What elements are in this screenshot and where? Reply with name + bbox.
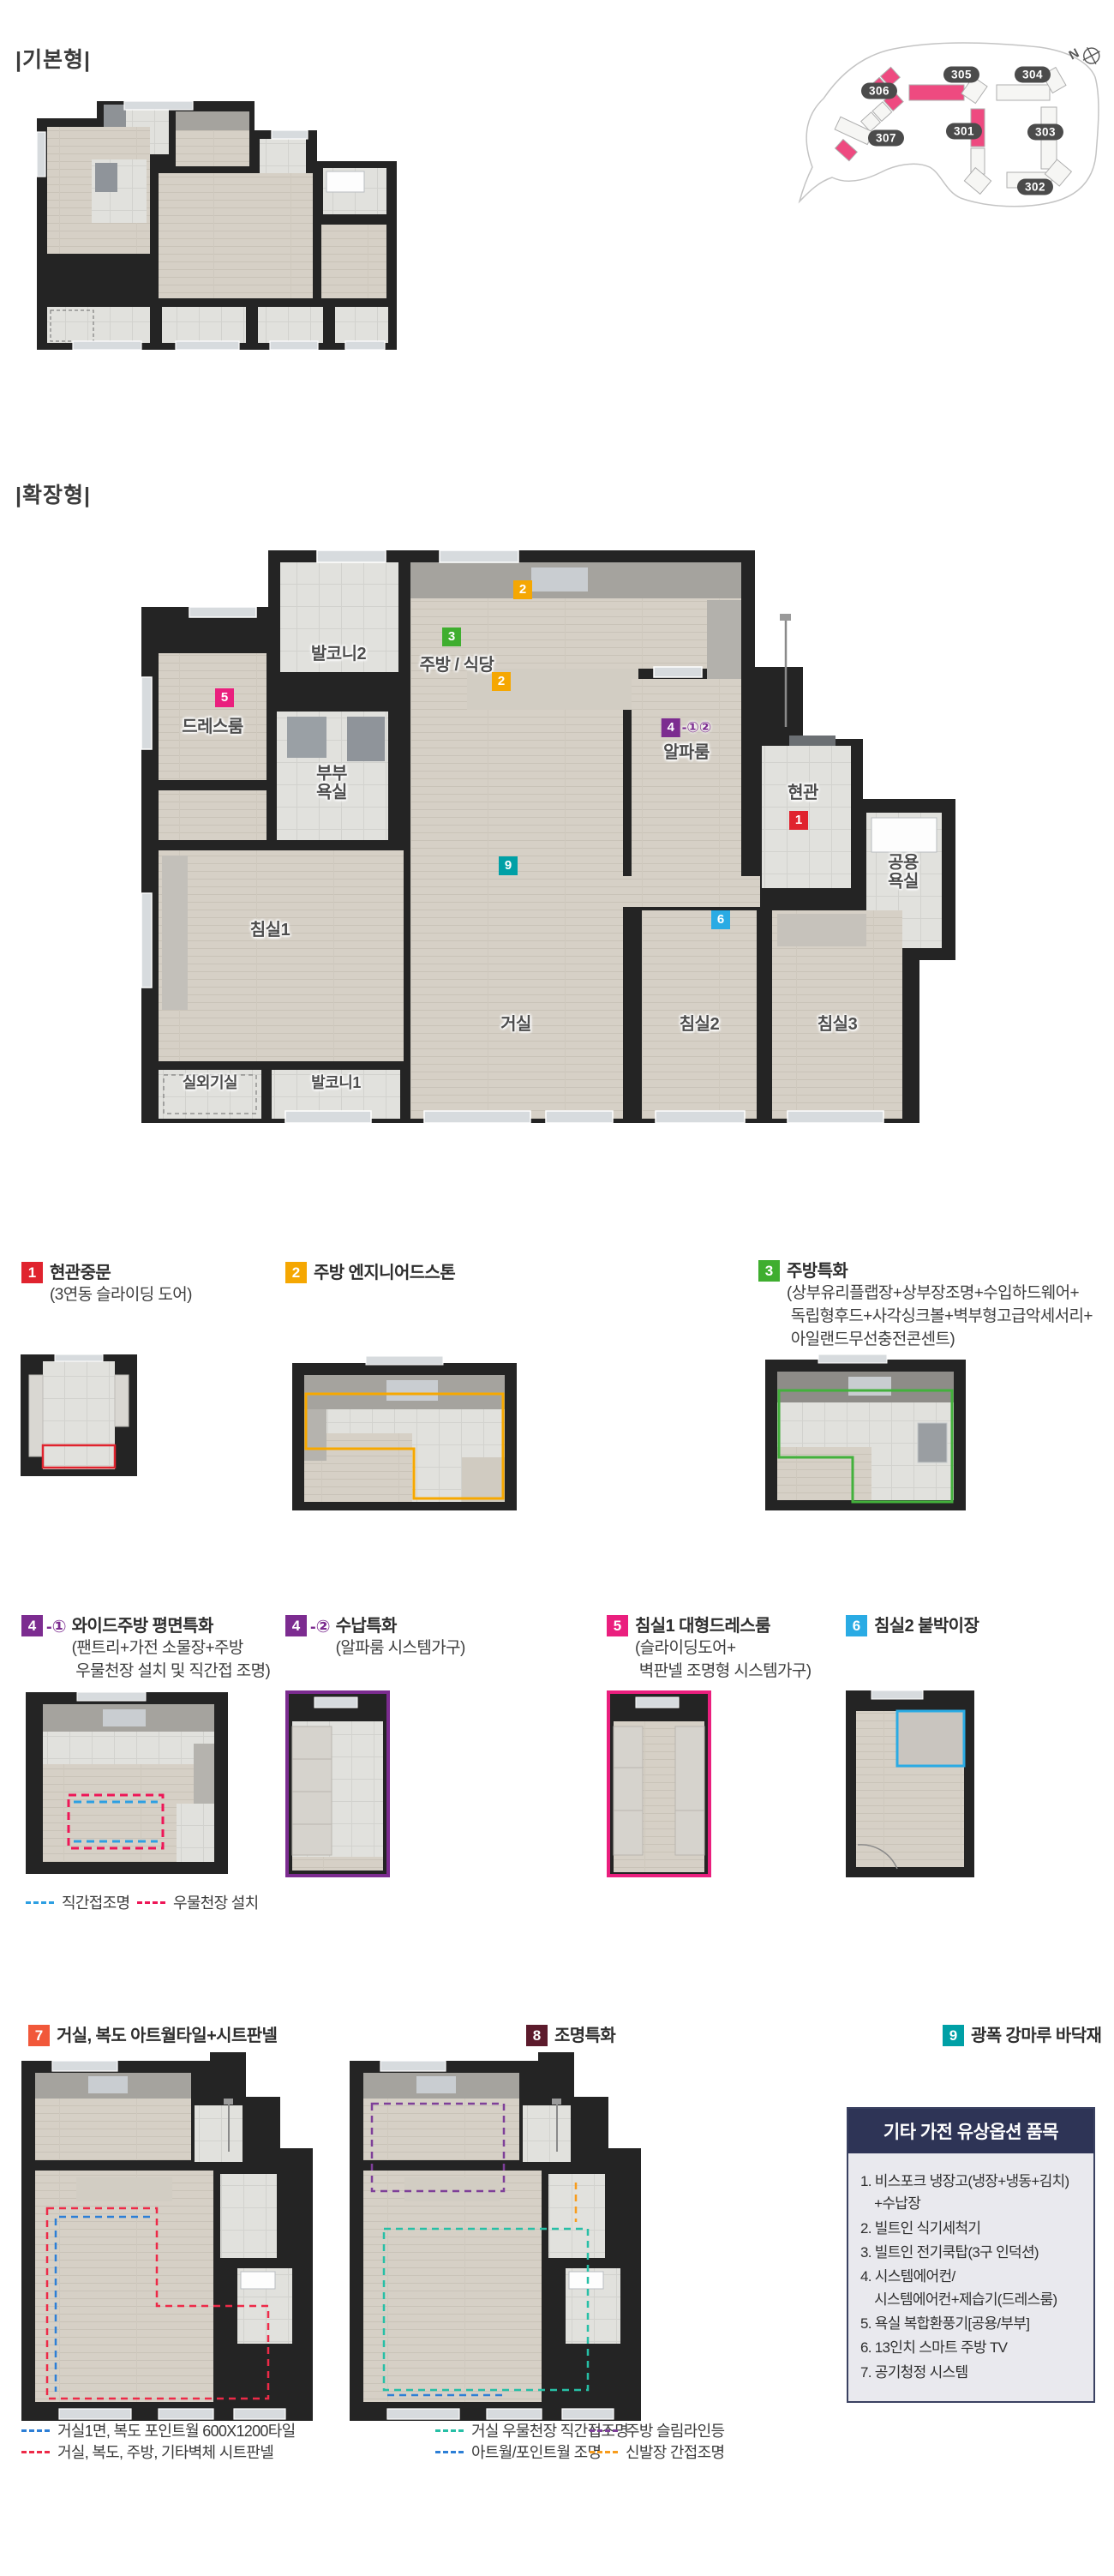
legend-badge-4-1: 4 [21,1615,43,1636]
legend7-sub-pointwall-tile: 거실1면, 복도 포인트월 600X1200타일 [21,2419,295,2441]
option-item-1: 1. 비스포크 냉장고(냉장+냉동+김치) +수납장 [860,2171,1083,2216]
legend-badge-7: 7 [28,2025,50,2046]
legend-badge-4-2-suffix: -② [310,1616,331,1637]
legend-badge-8: 8 [526,2025,548,2046]
option-item-6: 6. 13인치 스마트 주방 TV [860,2337,1083,2359]
room-label-balcony1: 발코니1 [311,1074,361,1091]
section-label-expanded: |확장형| [15,478,91,509]
building-badge-306: 306 [861,83,897,99]
legend-badge-3: 3 [758,1260,780,1282]
room-label-common-bath: 공용 욕실 [888,854,919,892]
marker-4: 4 -①② [662,718,711,737]
section-label-basic: |기본형| [15,43,91,74]
legend-badge-4-2: 4 [285,1615,307,1636]
marker-2a: 2 [513,580,532,599]
legend-title-2: 주방 엔지니어드스톤 [314,1262,455,1284]
room-label-bed1: 침실1 [250,921,290,940]
legend-item-1: 1 현관중문 (3연동 슬라이딩 도어) [21,1262,192,1307]
room-label-living: 거실 [500,1015,531,1034]
dash-swatch-shoecabinet-light [590,2451,618,2453]
paid-options-box: 기타 가전 유상옵션 품목 1. 비스포크 냉장고(냉장+냉동+김치) +수납장… [847,2107,1095,2403]
site-map-image [765,30,1105,214]
legend-badge-4-1-suffix: -① [46,1616,67,1637]
building-badge-302: 302 [1017,179,1053,195]
legend-badge-1: 1 [21,1262,43,1283]
legend-item-9: 9 광폭 강마루 바닥재 [943,2025,1101,2047]
legend7-sub-label-1: 거실1면, 복도 포인트월 600X1200타일 [57,2419,295,2441]
legend-item-7: 7 거실, 복도 아트월타일+시트판넬 [28,2025,277,2047]
building-badge-301: 301 [946,123,982,140]
legend-image-7-artwall-tile [21,2052,313,2421]
legend-title-4-2: 수납특화 [336,1615,465,1637]
room-label-bed3: 침실3 [818,1015,857,1034]
marker-4-square: 4 [662,718,680,737]
legend-image-2-kitchen-stone [284,1356,524,1510]
legend7-sub-sheet-panel: 거실, 복도, 주방, 기타벽체 시트판넬 [21,2441,273,2463]
legend-title-6: 침실2 붙박이장 [874,1615,979,1637]
dash-swatch-coffered-ceiling [137,1901,165,1904]
room-label-kitchen: 주방 / 식당 [420,656,494,675]
floorplan-brochure: |기본형| [0,0,1114,2576]
expanded-floorplan: 발코니2 드레스룸 부부 욕실 주방 / 식당 알파룸 현관 공용 욕실 침실1… [141,540,955,1123]
room-label-master-bath: 부부 욕실 [316,765,347,803]
legend-image-5-dressroom [607,1690,711,1877]
dash-swatch-direct-light [26,1901,54,1904]
legend-image-4-1-wide-kitchen [26,1692,228,1874]
legend-title-8: 조명특화 [554,2025,615,2047]
marker-3: 3 [442,627,461,646]
building-badge-307: 307 [868,130,904,147]
legend-item-3: 3 주방특화 (상부유리플랩장+상부장조명+수입하드웨어+ 독립형후드+사각싱크… [758,1260,1093,1352]
site-map: N 306 305 304 307 301 303 302 [765,30,1105,214]
expanded-floorplan-image [141,540,955,1123]
building-badge-305: 305 [943,67,979,83]
dash-swatch-slimline-light [590,2429,618,2432]
legend8-sub-label-2: 아트월/포인트월 조명 [471,2441,601,2463]
option-item-2: 2. 빌트인 식기세척기 [860,2218,1083,2240]
legend-item-8: 8 조명특화 [526,2025,615,2047]
marker-2b: 2 [492,672,511,691]
legend-item-4-1: 4 -① 와이드주방 평면특화 (팬트리+가전 소물장+주방 우물천장 설치 및… [21,1615,270,1684]
legend-image-1-entry-door [21,1354,137,1476]
legend4-sub-coffered-ceiling: 우물천장 설치 [137,1891,258,1913]
basic-floorplan-image [21,77,411,356]
marker-4-suffix: -①② [682,719,711,736]
legend8-sub-slimline-light: 주방 슬림라인등 [590,2419,724,2441]
legend-image-3-kitchen-special [758,1354,971,1510]
marker-9: 9 [499,856,518,875]
paid-options-title: 기타 가전 유상옵션 품목 [848,2109,1093,2153]
legend-subtitle-5: (슬라이딩도어+ 벽판넬 조명형 시스템가구) [635,1637,811,1684]
dash-swatch-coffered-light [435,2429,464,2432]
legend8-sub-shoecabinet-light: 신발장 간접조명 [590,2441,724,2463]
room-label-entry: 현관 [788,784,818,802]
room-label-dressroom: 드레스룸 [182,718,243,736]
legend-badge-2: 2 [285,1262,307,1283]
legend-badge-6: 6 [846,1615,867,1636]
option-item-7: 7. 공기청정 시스템 [860,2362,1083,2384]
legend-subtitle-4-2: (알파룸 시스템가구) [336,1637,465,1660]
building-badge-303: 303 [1027,124,1063,141]
legend-title-1: 현관중문 [50,1262,192,1284]
legend-image-4-2-alpha-storage [285,1690,390,1877]
marker-1: 1 [789,811,808,830]
legend4-sub-label-1: 직간접조명 [62,1891,129,1913]
legend-title-5: 침실1 대형드레스룸 [635,1615,811,1637]
legend-subtitle-4-1: (팬트리+가전 소물장+주방 우물천장 설치 및 직간접 조명) [72,1637,271,1684]
option-item-4: 4. 시스템에어컨/ 시스템에어컨+제습기(드레스룸) [860,2266,1083,2311]
legend-image-6-builtin-closet [846,1690,974,1877]
legend-title-3: 주방특화 [787,1260,1093,1282]
legend-badge-9: 9 [943,2025,964,2046]
option-item-3: 3. 빌트인 전기쿡탑(3구 인덕션) [860,2242,1083,2264]
room-label-bed2: 침실2 [680,1015,719,1034]
room-label-alpha: 알파룸 [663,743,710,762]
legend-subtitle-1: (3연동 슬라이딩 도어) [50,1284,192,1307]
legend-title-4-1: 와이드주방 평면특화 [72,1615,271,1637]
paid-options-list: 1. 비스포크 냉장고(냉장+냉동+김치) +수납장 2. 빌트인 식기세척기 … [848,2153,1093,2401]
legend-item-6: 6 침실2 붙박이장 [846,1615,979,1637]
room-label-balcony2: 발코니2 [311,645,366,664]
legend8-sub-label-4: 신발장 간접조명 [626,2441,724,2463]
legend-subtitle-3: (상부유리플랩장+상부장조명+수입하드웨어+ 독립형후드+사각싱크볼+벽부형고급… [787,1282,1093,1352]
legend-item-5: 5 침실1 대형드레스룸 (슬라이딩도어+ 벽판넬 조명형 시스템가구) [607,1615,811,1684]
marker-5: 5 [215,688,234,707]
building-badge-304: 304 [1015,67,1051,83]
legend-item-2: 2 주방 엔지니어드스톤 [285,1262,455,1284]
marker-6: 6 [711,910,730,929]
legend-title-9: 광폭 강마루 바닥재 [971,2025,1101,2047]
option-item-5: 5. 욕실 복합환풍기[공용/부부] [860,2313,1083,2335]
legend-item-4-2: 4 -② 수납특화 (알파룸 시스템가구) [285,1615,465,1660]
legend-badge-5: 5 [607,1615,628,1636]
legend4-sub-direct-light: 직간접조명 [26,1891,129,1913]
legend8-sub-artwall-light: 아트월/포인트월 조명 [435,2441,601,2463]
legend-title-7: 거실, 복도 아트월타일+시트판넬 [57,2025,277,2047]
dash-swatch-sheet-panel [21,2451,50,2453]
dash-swatch-pointwall-tile [21,2429,50,2432]
legend4-sub-label-2: 우물천장 설치 [173,1891,258,1913]
dash-swatch-artwall-light [435,2451,464,2453]
legend-image-8-lighting [350,2052,645,2421]
room-label-outdoor-unit: 실외기실 [183,1074,237,1091]
legend7-sub-label-2: 거실, 복도, 주방, 기타벽체 시트판넬 [57,2441,273,2463]
legend8-sub-label-3: 주방 슬림라인등 [626,2419,724,2441]
